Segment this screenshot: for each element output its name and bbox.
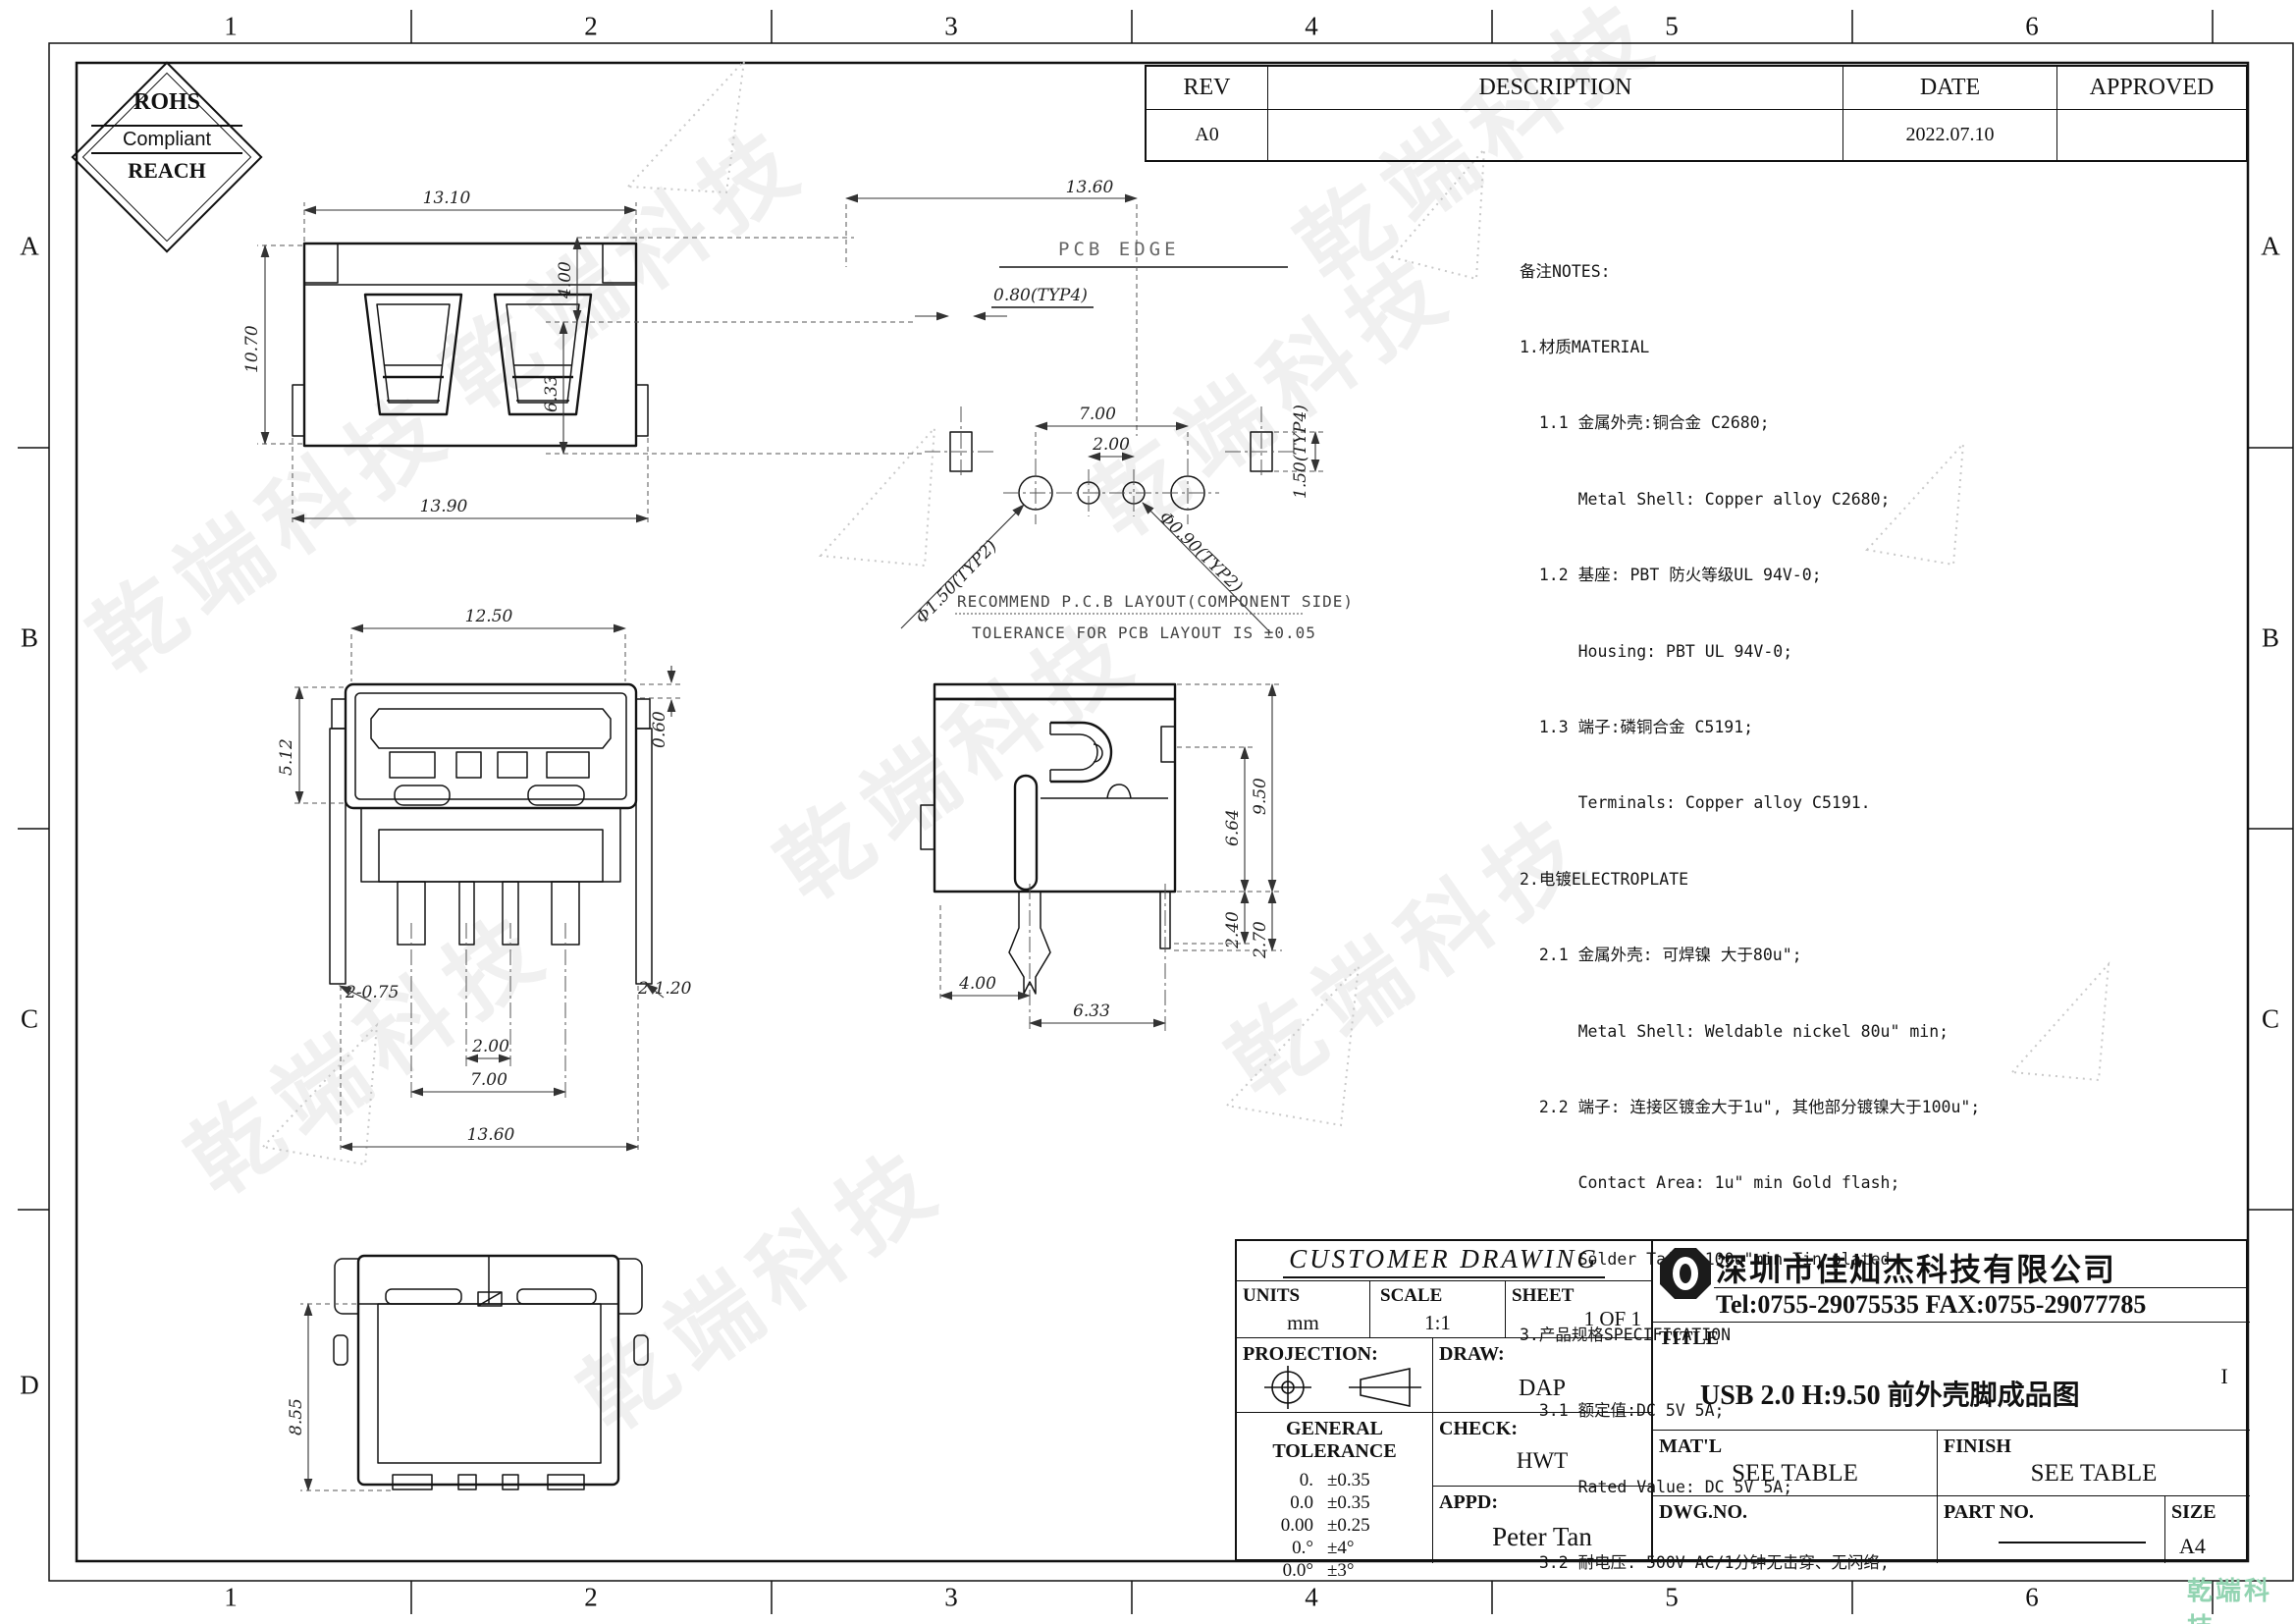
matl-value: SEE TABLE: [1653, 1460, 1937, 1488]
dim-7-00-pcb: 7.00: [1079, 405, 1116, 424]
draw-cell: DRAW: DAP: [1433, 1338, 1651, 1413]
part-no-cell: PART NO.: [1938, 1496, 2165, 1563]
tolerance-row: 0.00 ±0.25: [1237, 1514, 1432, 1537]
appd-cell: APPD: Peter Tan: [1433, 1487, 1651, 1563]
tolerance-row: 0.0° ±3°: [1237, 1559, 1432, 1582]
tol-range: 0.00: [1237, 1514, 1313, 1537]
front-shell-view: 13.10 10.70 13.90: [242, 189, 648, 526]
company-name: 深圳市佳灿杰科技有限公司: [1716, 1245, 2116, 1290]
dim-2-00-pcb: 2.00: [1092, 435, 1130, 455]
dim-phi-1-50: Φ1.50(TYP2): [912, 537, 1001, 628]
size-value: A4: [2179, 1534, 2206, 1559]
company-header-cell: 深圳市佳灿杰科技有限公司 Tel:0755-29075535 FAX:0755-…: [1651, 1241, 2250, 1323]
drawing-title: USB 2.0 H:9.50 前外壳脚成品图: [1700, 1374, 2080, 1413]
pcb-note-2: TOLERANCE FOR PCB LAYOUT IS ±0.05: [972, 623, 1316, 642]
dim-phi-0-90: Φ0.90(TYP2): [1155, 508, 1247, 597]
tol-value: ±3°: [1313, 1559, 1417, 1582]
matl-label: MAT'L: [1659, 1435, 1722, 1458]
matl-cell: MAT'L SEE TABLE: [1651, 1431, 1938, 1496]
dim-12-50: 12.50: [465, 607, 513, 626]
projection-cell: PROJECTION:: [1237, 1338, 1433, 1413]
size-label: SIZE: [2171, 1501, 2216, 1524]
pcb-note-1: RECOMMEND P.C.B LAYOUT(COMPONENT SIDE): [957, 592, 1354, 611]
finish-value: SEE TABLE: [1938, 1460, 2250, 1488]
dim-6-64: 6.64: [1223, 809, 1243, 846]
corner-watermark: 乾端科技: [2187, 1571, 2296, 1624]
draw-value: DAP: [1433, 1376, 1651, 1402]
tolerance-row: 0. ±0.35: [1237, 1469, 1432, 1491]
side-profile-view: 9.50 6.64 2.40 2.70 4.00 6.33: [921, 684, 1282, 1031]
sheet-cell: SHEET 1 OF 1: [1506, 1281, 1651, 1338]
units-label: UNITS: [1243, 1285, 1300, 1307]
scale-cell: SCALE 1:1: [1370, 1281, 1506, 1338]
scale-label: SCALE: [1380, 1285, 1442, 1307]
general-tolerance-cell: GENERAL TOLERANCE 0. ±0.35 0.0 ±0.35 0.0…: [1237, 1413, 1433, 1563]
dim-4-00-side: 4.00: [958, 974, 996, 994]
draw-label: DRAW:: [1439, 1343, 1505, 1366]
units-value: mm: [1237, 1311, 1369, 1335]
general-tolerance-label: GENERAL TOLERANCE: [1237, 1418, 1432, 1463]
tol-range: 0.°: [1237, 1537, 1313, 1559]
dim-7-00-mid: 7.00: [470, 1070, 507, 1090]
tol-value: ±0.35: [1313, 1491, 1417, 1514]
tol-range: 0.: [1237, 1469, 1313, 1491]
tol-value: ±0.35: [1313, 1469, 1417, 1491]
dim-8-55: 8.55: [287, 1398, 306, 1435]
pcb-layout-view: PCB EDGE 13.60 0.80(TYP4) 4.00 6.33: [542, 178, 1354, 642]
header-divider: [1714, 1287, 2248, 1288]
dim-9-50: 9.50: [1251, 778, 1270, 815]
tol-range: 0.0: [1237, 1491, 1313, 1514]
third-angle-projection-icon: [1245, 1365, 1431, 1410]
tolerance-row: 0.° ±4°: [1237, 1537, 1432, 1559]
dim-2-70: 2.70: [1251, 921, 1270, 959]
scale-value: 1:1: [1370, 1311, 1505, 1335]
finish-cell: FINISH SEE TABLE: [1938, 1431, 2250, 1496]
pcb-edge-label: PCB EDGE: [1058, 239, 1180, 260]
appd-label: APPD:: [1439, 1491, 1498, 1514]
dim-6-33-pcb: 6.33: [542, 375, 561, 412]
sheet-value: 1 OF 1: [1506, 1307, 1651, 1331]
dim-10-70: 10.70: [242, 325, 262, 373]
title-cell: TITLE USB 2.0 H:9.50 前外壳脚成品图: [1651, 1323, 2250, 1431]
check-value: HWT: [1433, 1448, 1651, 1474]
dim-0-60: 0.60: [650, 711, 669, 748]
customer-drawing-cell: CUSTOMER DRAWING: [1237, 1241, 1651, 1281]
dim-1-50-typ4: 1.50(TYP4): [1291, 405, 1310, 499]
check-label: CHECK:: [1439, 1418, 1518, 1440]
size-cell: SIZE A4: [2165, 1496, 2250, 1563]
tolerance-row: 0.0 ±0.35: [1237, 1491, 1432, 1514]
customer-drawing-label: CUSTOMER DRAWING: [1283, 1244, 1605, 1278]
dim-5-12: 5.12: [277, 738, 296, 776]
drawing-sheet: 乾端科技 乾端科技 乾端科技 乾端科技 乾端科技 乾端科技 乾端科技 乾端科技: [0, 0, 2296, 1624]
dim-0-80-typ4: 0.80(TYP4): [993, 286, 1088, 305]
appd-value: Peter Tan: [1433, 1522, 1651, 1552]
company-logo: [1659, 1247, 1712, 1300]
dim-13-90: 13.90: [420, 497, 468, 516]
sheet-label: SHEET: [1512, 1285, 1574, 1307]
tol-value: ±0.25: [1313, 1514, 1417, 1537]
finish-label: FINISH: [1944, 1435, 2011, 1458]
title-label: TITLE: [1659, 1327, 1719, 1350]
projection-label: PROJECTION:: [1243, 1343, 1378, 1366]
dim-13-60-pcb: 13.60: [1066, 178, 1114, 197]
dim-13-10: 13.10: [423, 189, 471, 208]
tol-value: ±4°: [1313, 1537, 1417, 1559]
mating-face-view: 12.50: [277, 607, 692, 1153]
dwg-no-cell: DWG.NO.: [1651, 1496, 1938, 1563]
dim-2-1-20: 2-1.20: [637, 979, 692, 999]
part-no-label: PART NO.: [1944, 1501, 2034, 1524]
dim-2-00-mid: 2.00: [471, 1037, 509, 1056]
title-block: CUSTOMER DRAWING UNITS mm SCALE 1:1 SHEE…: [1235, 1239, 2248, 1561]
dim-4-00-pcb: 4.00: [556, 261, 575, 299]
check-cell: CHECK: HWT: [1433, 1413, 1651, 1487]
dwg-no-label: DWG.NO.: [1659, 1501, 1747, 1524]
tol-range: 0.0°: [1237, 1559, 1313, 1582]
dim-6-33-side: 6.33: [1073, 1001, 1110, 1021]
dim-2-40: 2.40: [1223, 911, 1243, 949]
units-cell: UNITS mm: [1237, 1281, 1370, 1338]
company-tel-fax: Tel:0755-29075535 FAX:0755-29077785: [1716, 1290, 2146, 1320]
dim-13-60-mid: 13.60: [467, 1125, 515, 1145]
rear-view: 8.55: [287, 1256, 648, 1490]
part-no-blank: [1999, 1542, 2146, 1543]
